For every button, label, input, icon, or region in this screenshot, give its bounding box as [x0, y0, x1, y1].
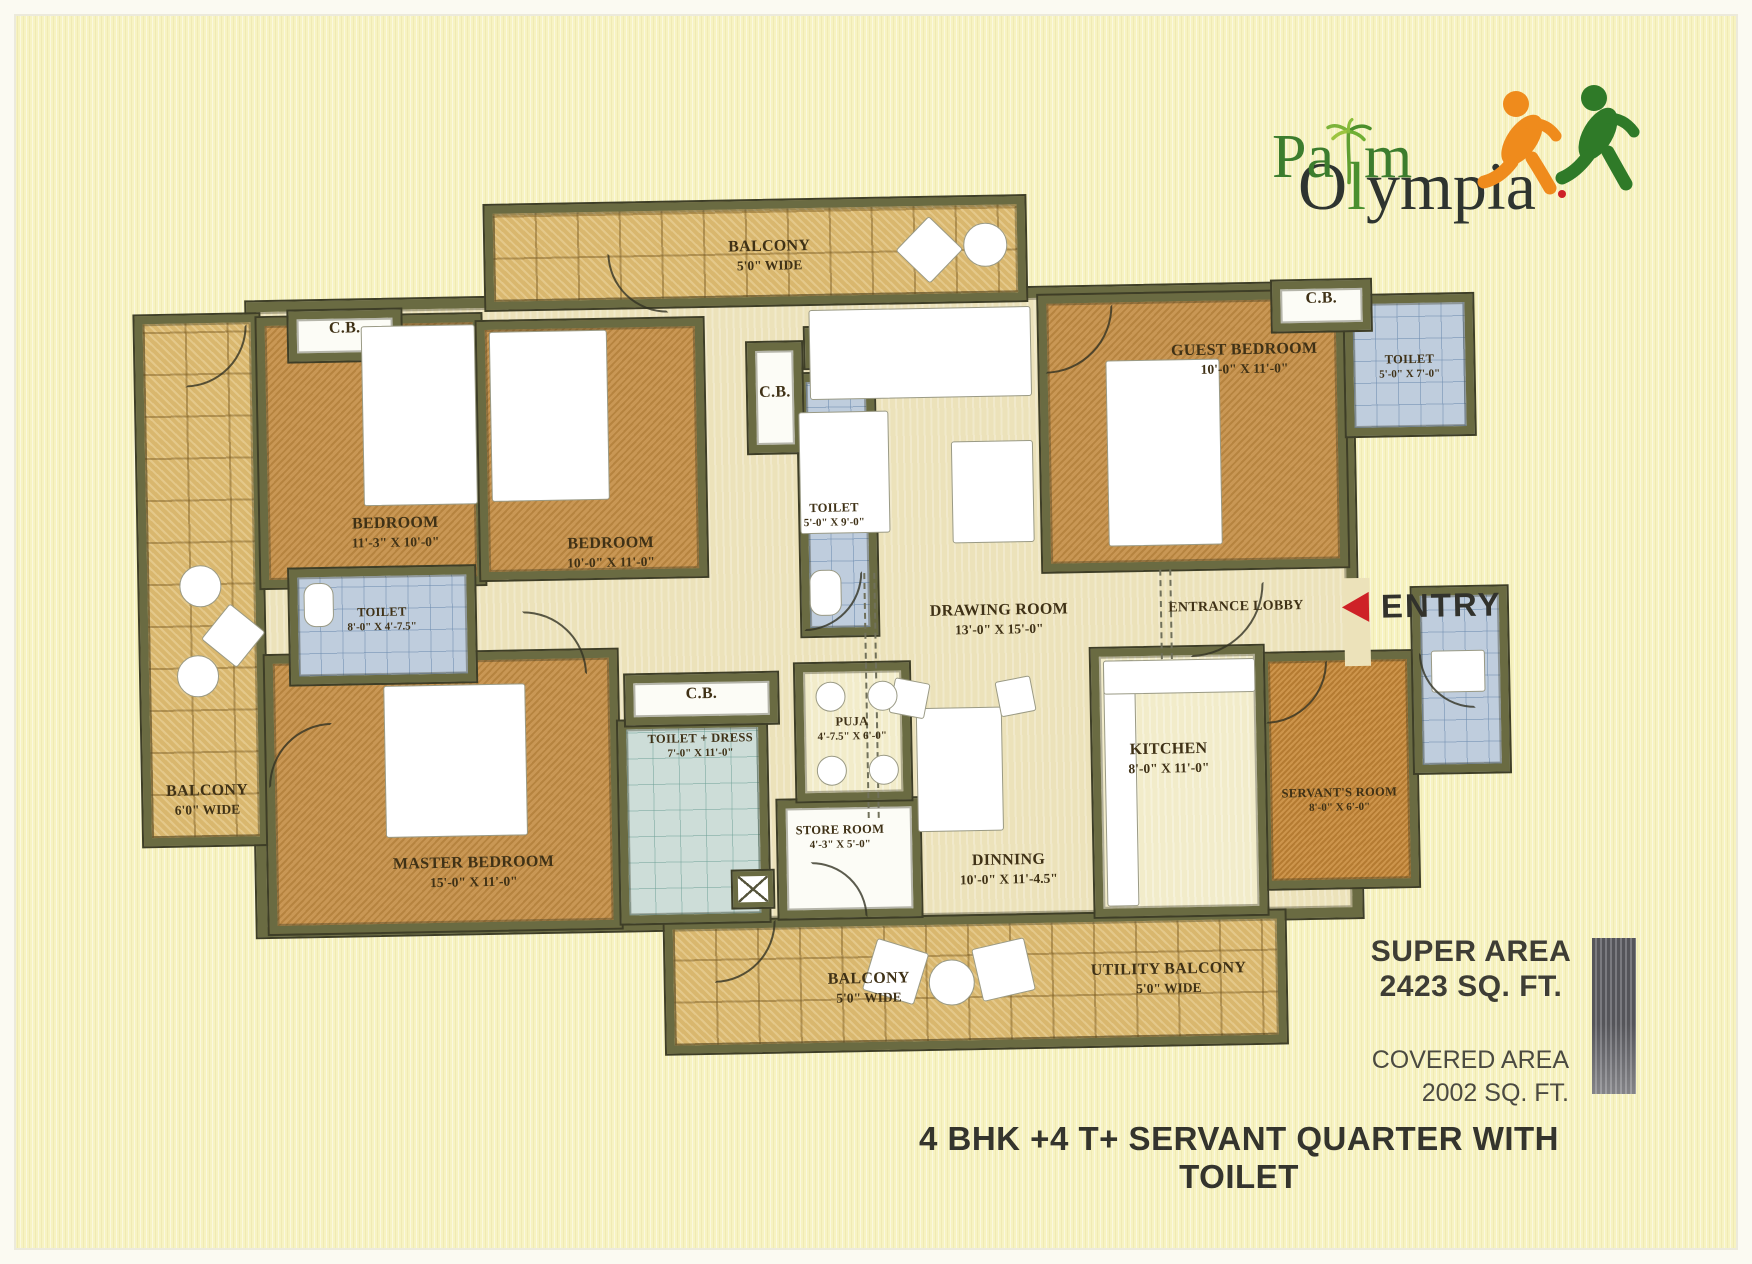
entrance-lobby-label: ENTRANCE LOBBY: [1136, 596, 1336, 618]
super-area-label: SUPER AREA: [1366, 934, 1576, 969]
dinning-label: DINNING10'-0" X 11'-4.5": [908, 849, 1109, 890]
toilet-mid-label: TOILET5'-0" X 9'-0": [779, 499, 890, 531]
shaft-icon: [733, 871, 774, 908]
dining-table: [916, 707, 1004, 833]
cb-mid-label: C.B.: [748, 382, 802, 403]
balcony-left-label: BALCONY6'0" WIDE: [147, 780, 268, 820]
chair: [994, 675, 1036, 717]
divider-bar: [1592, 938, 1636, 1094]
toilet-dress-label: TOILET + DRESS7'-0" X 11'-0": [620, 729, 781, 762]
super-area-block: SUPER AREA 2423 SQ. FT.: [1366, 934, 1576, 1005]
sofa: [951, 440, 1035, 543]
balcony-top-label: BALCONY5'0" WIDE: [669, 235, 870, 276]
utility-balcony-label: UTILITY BALCONY5'0" WIDE: [1068, 958, 1269, 999]
configuration-headline: 4 BHK +4 T+ SERVANT QUARTER WITH TOILET: [894, 1120, 1584, 1196]
bedroom-mid-label: BEDROOM10'-0" X 11'-0": [511, 532, 712, 573]
master-bedroom-label: MASTER BEDROOM15'-0" X 11'-0": [348, 851, 599, 893]
runners-logo-icon: [1466, 82, 1656, 217]
bed: [361, 324, 478, 506]
bed: [489, 330, 610, 502]
cb-left-label: C.B.: [289, 318, 401, 341]
kitchen-counter: [1103, 658, 1256, 695]
logo-palm-pa: Pa: [1272, 126, 1334, 188]
logo-palm-word: Pa m: [1272, 90, 1412, 188]
covered-area-block: COVERED AREA 2002 SQ. FT.: [1354, 1044, 1569, 1109]
super-area-value: 2423 SQ. FT.: [1366, 969, 1576, 1004]
servant-room-label: SERVANT'S ROOM8'-0" X 6'-0": [1259, 783, 1420, 816]
puja-label: PUJA4'-7.5" X 6'-0": [802, 712, 903, 744]
kitchen-label: KITCHEN8'-0" X 11'-0": [1068, 738, 1269, 779]
cb-right-label: C.B.: [1272, 288, 1370, 310]
covered-area-label: COVERED AREA: [1354, 1044, 1569, 1077]
covered-area-value: 2002 SQ. FT.: [1354, 1077, 1569, 1110]
bed: [383, 683, 528, 838]
bedroom-left-label: BEDROOM11'-3" X 10'-0": [295, 512, 496, 553]
bed: [1105, 359, 1222, 547]
guest-bedroom-label: GUEST BEDROOM10'-0" X 11'-0": [1144, 338, 1345, 379]
entry-marker: ENTRY: [1342, 585, 1502, 626]
logo-palm-m: m: [1364, 126, 1412, 188]
balcony-bottom-label: BALCONY5'0" WIDE: [769, 967, 970, 1008]
dashed-line: [1159, 569, 1173, 669]
cb-master-label: C.B.: [625, 683, 777, 706]
entry-arrow-icon: [1342, 592, 1370, 622]
toilet-left-label: TOILET8'-0" X 4'-7.5": [312, 603, 453, 636]
store-room-label: STORE ROOM4'-3" X 5'-0": [770, 820, 911, 853]
floor-plan-brochure: Pa m Olympia: [0, 0, 1752, 1264]
entry-label: ENTRY: [1381, 585, 1502, 625]
drawing-room-label: DRAWING ROOM13'-0" X 15'-0": [874, 598, 1125, 640]
toilet-right-label: TOILET5'-0" X 7'-0": [1349, 350, 1470, 382]
sofa: [808, 306, 1032, 400]
